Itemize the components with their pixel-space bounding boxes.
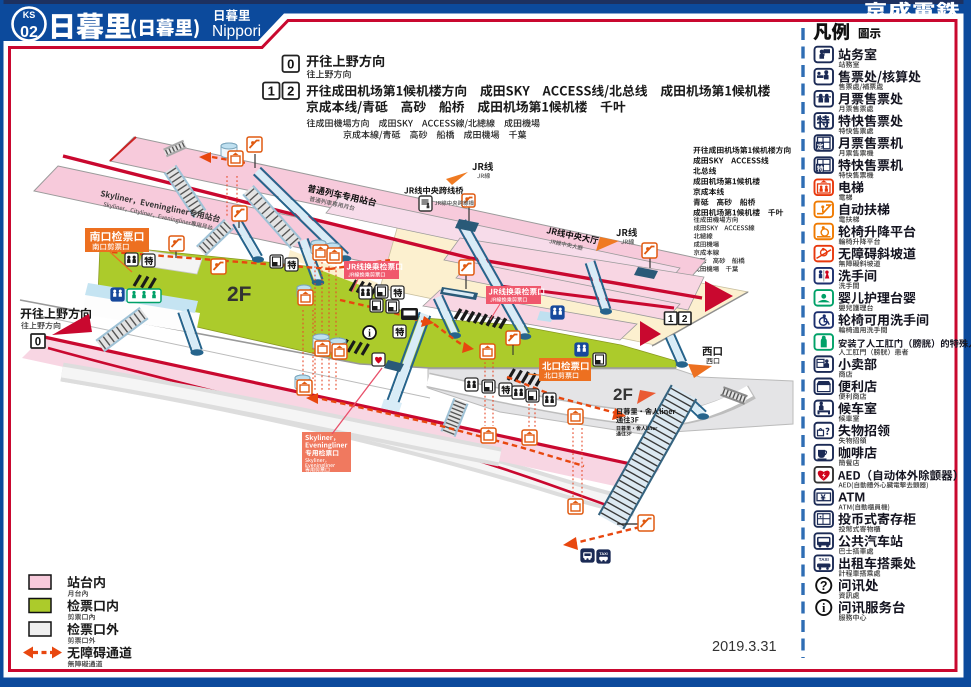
svg-text:2: 2 [682,314,688,325]
svg-text:TAXI: TAXI [599,552,607,556]
svg-text:TAXI: TAXI [819,557,829,562]
svg-text:?: ? [820,579,828,593]
svg-text:Nippori: Nippori [212,23,261,40]
svg-text:i: i [822,601,826,615]
svg-text:1: 1 [268,84,275,99]
svg-text:i: i [368,328,371,339]
svg-text:2F: 2F [613,385,633,404]
svg-text:ATM: ATM [838,490,865,505]
svg-text:02: 02 [20,24,38,41]
svg-text:1: 1 [668,314,674,325]
svg-text:2: 2 [287,84,294,99]
svg-text:0: 0 [35,336,41,348]
svg-text:KS: KS [23,10,36,20]
svg-text:2019.3.31: 2019.3.31 [712,639,777,655]
svg-text:0: 0 [287,57,294,72]
svg-text:2F: 2F [227,283,252,306]
